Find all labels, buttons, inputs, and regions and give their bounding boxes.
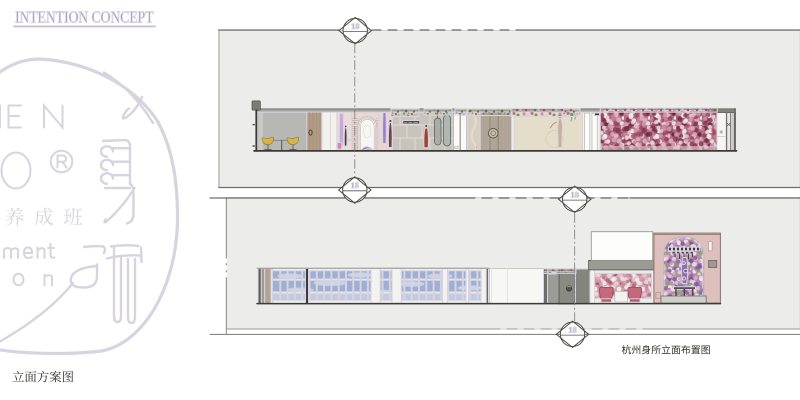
svg-text:18: 18 — [568, 326, 576, 335]
svg-text:INTENTION CONCEPT: INTENTION CONCEPT — [15, 7, 154, 26]
svg-text:18: 18 — [351, 22, 359, 31]
svg-text:18: 18 — [571, 191, 579, 200]
svg-text:18: 18 — [351, 181, 359, 190]
